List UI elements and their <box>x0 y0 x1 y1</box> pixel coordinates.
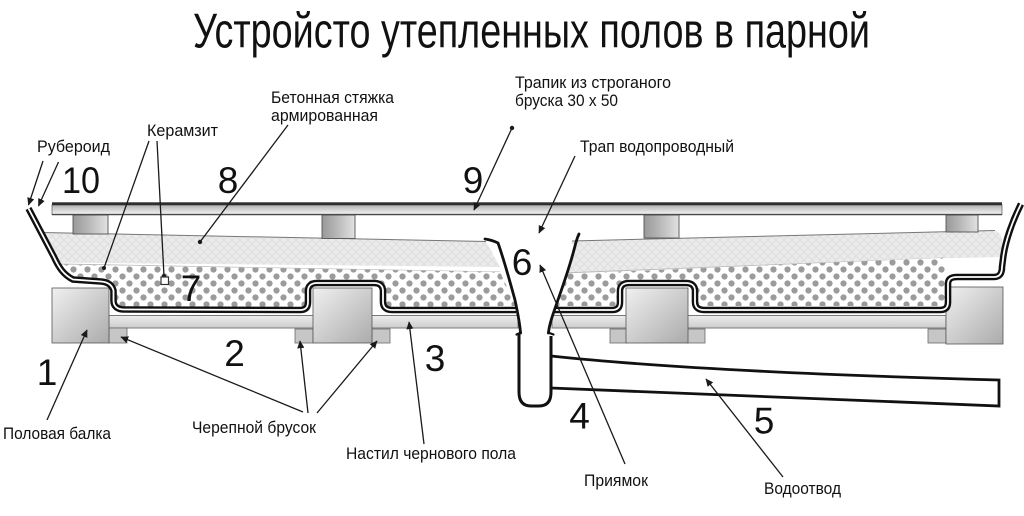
svg-text:Трапик из строганого: Трапик из строганого <box>515 73 671 92</box>
svg-text:Половая балка: Половая балка <box>3 424 111 443</box>
svg-text:армированная: армированная <box>271 106 378 125</box>
svg-text:7: 7 <box>181 268 202 309</box>
svg-text:1: 1 <box>37 352 58 393</box>
svg-text:Приямок: Приямок <box>584 471 649 490</box>
svg-text:4: 4 <box>569 396 590 437</box>
svg-text:6: 6 <box>512 242 533 283</box>
svg-text:9: 9 <box>463 160 484 201</box>
svg-text:8: 8 <box>218 160 239 201</box>
svg-text:10: 10 <box>62 160 100 201</box>
svg-text:Трап водопроводный: Трап водопроводный <box>580 137 734 156</box>
svg-text:Водоотвод: Водоотвод <box>764 479 841 498</box>
svg-text:2: 2 <box>224 333 245 374</box>
svg-text:Рубероид: Рубероид <box>37 137 110 156</box>
svg-text:Настил чернового пола: Настил чернового пола <box>346 444 516 463</box>
svg-text:Черепной брусок: Черепной брусок <box>192 418 317 437</box>
svg-text:Бетонная стяжка: Бетонная стяжка <box>271 88 394 107</box>
svg-text:Керамзит: Керамзит <box>147 121 218 140</box>
svg-text:5: 5 <box>754 401 775 442</box>
svg-text:бруска 30 х 50: бруска 30 х 50 <box>515 91 618 110</box>
svg-text:3: 3 <box>425 338 446 379</box>
svg-text:Устройсто утепленных полов в п: Устройсто утепленных полов в парной <box>193 5 870 59</box>
